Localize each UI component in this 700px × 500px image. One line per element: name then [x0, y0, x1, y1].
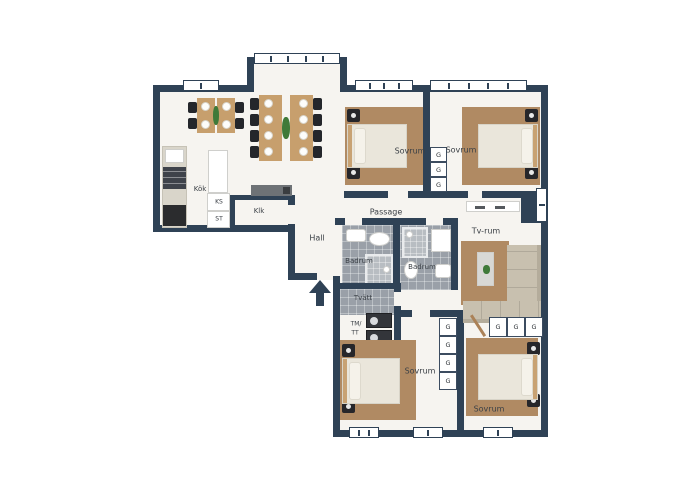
dining-table-small	[188, 96, 244, 136]
wall-segment	[394, 283, 401, 292]
wall-segment	[362, 218, 426, 225]
wall-segment	[398, 310, 412, 317]
table-plant	[282, 117, 290, 139]
pillow	[521, 128, 533, 164]
wall-segment	[344, 191, 388, 198]
window	[413, 427, 443, 438]
room-label-passage: Passage	[370, 208, 403, 217]
chair	[188, 102, 197, 113]
washing-machine-icon	[366, 313, 392, 328]
plate	[264, 147, 273, 156]
coffee-table-plant	[483, 265, 490, 274]
plate	[299, 115, 308, 124]
wall-bedroom-divider-top	[423, 88, 430, 191]
wall-segment	[541, 85, 548, 437]
fridge-icon	[163, 167, 186, 189]
chair	[313, 146, 322, 158]
kitchen-sink	[165, 149, 184, 163]
plate	[264, 115, 273, 124]
wall-segment	[335, 218, 345, 225]
wardrobe: G	[439, 372, 457, 390]
sideboard-end	[283, 187, 290, 194]
window	[483, 427, 513, 438]
window-tick	[383, 83, 385, 89]
wardrobe: G	[507, 317, 525, 337]
plate	[264, 131, 273, 140]
nightstand	[342, 344, 355, 357]
wardrobe-label: G	[445, 323, 450, 331]
sink	[435, 264, 451, 278]
shower-head	[383, 266, 390, 273]
nightstand	[525, 109, 538, 122]
label-ks: KS	[215, 199, 223, 206]
window-tick	[368, 430, 370, 436]
room-label-tv-rum: Tv-rum	[472, 227, 500, 236]
floor-bay	[253, 60, 344, 90]
wardrobe-label: G	[436, 181, 441, 189]
headboard	[348, 125, 352, 167]
chair	[188, 118, 197, 129]
wall-segment	[288, 224, 295, 280]
window-tick	[287, 56, 289, 62]
chair	[250, 98, 259, 110]
plate	[299, 131, 308, 140]
label-st: ST	[215, 216, 222, 223]
plate	[299, 99, 308, 108]
entrance-arrow-icon	[309, 280, 331, 307]
wall-segment	[153, 85, 160, 232]
window-tick	[200, 83, 202, 89]
table-plant	[213, 106, 219, 125]
toilet	[369, 232, 390, 246]
headboard	[533, 125, 537, 167]
window-tick	[468, 83, 470, 89]
wall-bathroom-divider	[393, 225, 400, 283]
dining-table-large	[250, 93, 322, 163]
tv-icon	[475, 206, 485, 209]
wall-segment	[335, 283, 394, 289]
bathroom-cabinet	[431, 229, 451, 252]
sink	[346, 229, 366, 242]
wall-bedroom-divider-bottom	[457, 310, 464, 437]
wardrobe: G	[430, 147, 447, 162]
laundry-tile-floor	[340, 289, 394, 315]
tv-icon	[495, 206, 505, 209]
room-label-sovrum-bottom-middle: Sovrum	[405, 367, 436, 376]
window-tick	[448, 83, 450, 89]
window-tick	[305, 56, 307, 62]
headboard	[343, 359, 347, 403]
floor-plan: G G G G G G G	[0, 0, 700, 500]
oven-icon	[163, 205, 186, 226]
chair	[235, 118, 244, 129]
window	[183, 80, 219, 91]
bed	[478, 354, 538, 400]
wall-segment	[408, 191, 468, 198]
wardrobe: G	[439, 336, 457, 354]
wardrobe-label: G	[531, 323, 536, 331]
coffee-table	[477, 252, 494, 286]
wall-segment	[451, 218, 458, 290]
plate	[222, 102, 231, 111]
chair	[313, 130, 322, 142]
wardrobe-label: G	[513, 323, 518, 331]
chair	[313, 114, 322, 126]
label-tt: TT	[351, 330, 358, 337]
window	[355, 80, 413, 91]
window-tick	[487, 83, 489, 89]
room-label-klk: Klk	[254, 207, 265, 215]
pillow	[349, 362, 361, 400]
wardrobe-label: G	[436, 151, 441, 159]
window-tick	[507, 83, 509, 89]
window	[254, 53, 340, 64]
window	[430, 80, 527, 91]
window-tick	[270, 56, 272, 62]
wardrobe-label: G	[495, 323, 500, 331]
tv-bench	[466, 201, 520, 212]
room-label-sovrum-top-middle: Sovrum	[395, 147, 426, 156]
bed	[478, 124, 538, 168]
window-tick	[369, 83, 371, 89]
room-label-hall: Hall	[309, 234, 324, 243]
nightstand	[347, 109, 360, 122]
window-tick	[398, 83, 400, 89]
wardrobe: G	[525, 317, 543, 337]
window-tick	[358, 430, 360, 436]
chair	[313, 98, 322, 110]
wardrobe-label: G	[445, 377, 450, 385]
window-tick	[539, 204, 545, 206]
shower-head	[406, 231, 413, 238]
plate	[264, 99, 273, 108]
pillow	[521, 358, 533, 396]
window	[349, 427, 379, 438]
window-tick	[322, 56, 324, 62]
wardrobe: G	[439, 318, 457, 336]
plate	[299, 147, 308, 156]
room-label-tvatt: Tvätt	[354, 294, 372, 302]
bed	[342, 358, 400, 404]
chair	[250, 146, 259, 158]
window	[536, 188, 547, 222]
chair	[235, 102, 244, 113]
plate	[222, 120, 231, 129]
plate	[201, 120, 210, 129]
wardrobe-label: G	[436, 166, 441, 174]
room-label-kok: Kök	[194, 185, 207, 193]
wardrobe: G	[489, 317, 507, 337]
headboard	[533, 355, 537, 399]
wardrobe: G	[430, 177, 447, 192]
arrow-shaft	[316, 292, 324, 306]
room-label-badrum-right: Badrum	[408, 263, 436, 271]
wardrobe-label: G	[445, 341, 450, 349]
wardrobe: G	[430, 162, 447, 177]
sideboard	[251, 185, 292, 196]
plate	[201, 102, 210, 111]
wardrobe: G	[439, 354, 457, 372]
room-label-badrum-left: Badrum	[345, 257, 373, 265]
wardrobe-label: G	[445, 359, 450, 367]
window-tick	[427, 430, 429, 436]
pillow	[354, 128, 366, 164]
bedroom-bottom-middle-furniture	[340, 338, 418, 422]
wall-segment	[333, 276, 340, 437]
kitchen-tall-cabinet	[208, 150, 228, 193]
kitchen-counter	[162, 146, 187, 228]
chair	[250, 130, 259, 142]
room-label-sovrum-bottom-right: Sovrum	[474, 405, 505, 414]
room-label-sovrum-top-right: Sovrum	[446, 146, 477, 155]
chair	[250, 114, 259, 126]
label-tm: TM/	[351, 321, 362, 328]
wall-segment-closet	[230, 195, 235, 230]
window-tick	[497, 430, 499, 436]
